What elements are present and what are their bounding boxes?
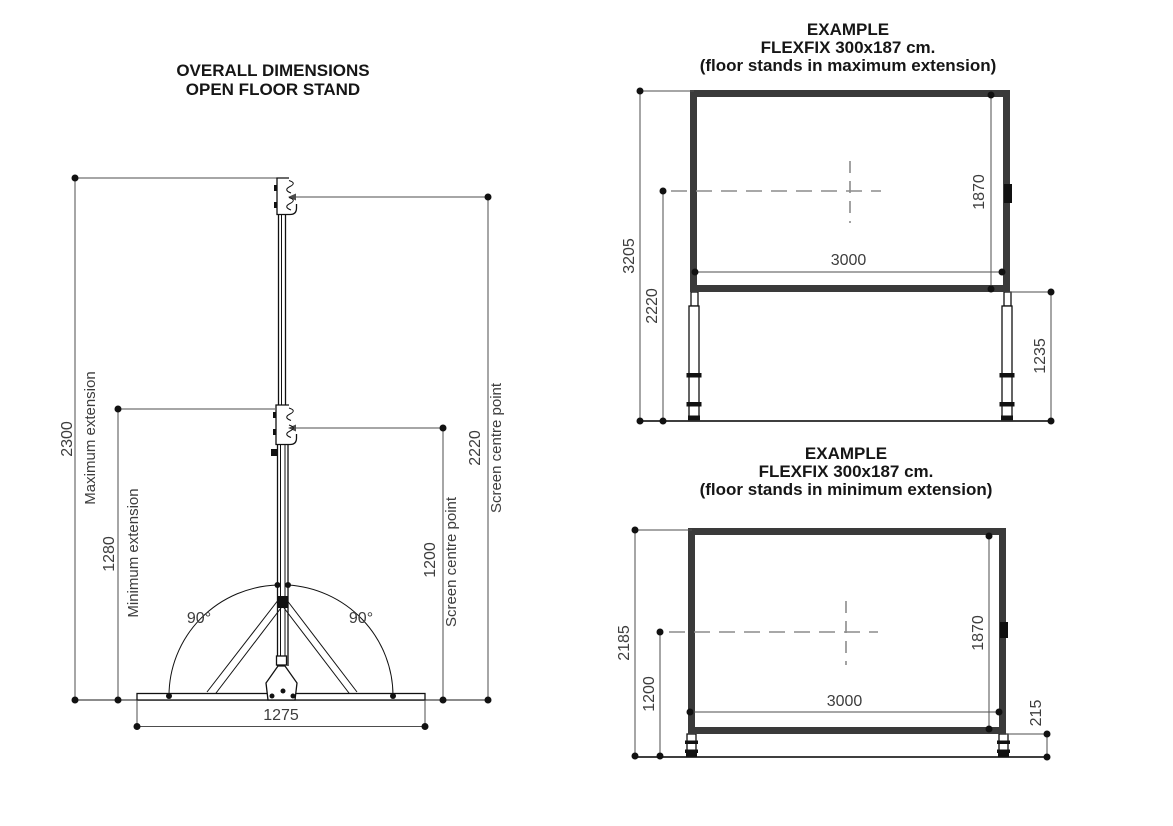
max-extension-label: Maximum extension (82, 371, 99, 504)
right-stand-leg (1000, 292, 1015, 421)
screen-width-value: 3000 (831, 252, 867, 269)
max-example-title-line1: EXAMPLE (807, 20, 889, 39)
screen-height-value: 1870 (970, 615, 987, 651)
centre-height-value: 2220 (644, 288, 661, 324)
foot-collar (277, 656, 287, 665)
screen-centre-low-label: Screen centre point (443, 496, 460, 627)
angle-left-label: 90° (187, 610, 211, 627)
page-background (0, 0, 1173, 826)
min-extension-label: Minimum extension (125, 488, 142, 617)
min-example-title-line1: EXAMPLE (805, 444, 887, 463)
centre-height-value: 1200 (641, 676, 658, 712)
leg-pivot-clamp (277, 596, 288, 608)
screen-centre-low-value: 1200 (422, 542, 439, 578)
base-width-value: 1275 (263, 707, 299, 724)
left-stand-leg (687, 292, 702, 421)
min-example-title-line3: (floor stands in minimum extension) (700, 480, 993, 499)
overall-height-value: 3205 (621, 238, 638, 274)
overall-height-value: 2185 (616, 625, 633, 661)
floor-stand-title-line2: OPEN FLOOR STAND (186, 80, 360, 99)
screen-width-value: 3000 (827, 693, 863, 710)
leg-height-value: 215 (1028, 700, 1045, 727)
screen-centre-high-value: 2220 (467, 430, 484, 466)
screen-height-value: 1870 (971, 174, 988, 210)
technical-drawing-page: OVERALL DIMENSIONS OPEN FLOOR STAND 2300… (0, 0, 1173, 826)
frame-centre-tick (1000, 622, 1008, 638)
drawing-canvas: OVERALL DIMENSIONS OPEN FLOOR STAND 2300… (0, 0, 1173, 826)
leg-height-value: 1235 (1032, 338, 1049, 374)
max-example-title-line3: (floor stands in maximum extension) (700, 56, 997, 75)
min-extension-value: 1280 (101, 536, 118, 572)
min-example-title-line2: FLEXFIX 300x187 cm. (759, 462, 934, 481)
max-extension-value: 2300 (59, 421, 76, 457)
left-stand-leg (685, 734, 698, 757)
frame-centre-tick (1004, 184, 1012, 203)
right-stand-leg (997, 734, 1010, 757)
max-example-title-line2: FLEXFIX 300x187 cm. (761, 38, 936, 57)
floor-stand-title-line1: OVERALL DIMENSIONS (176, 61, 369, 80)
angle-right-label: 90° (349, 610, 373, 627)
screen-centre-high-label: Screen centre point (488, 382, 505, 513)
pole-clamp-knob (271, 449, 278, 456)
